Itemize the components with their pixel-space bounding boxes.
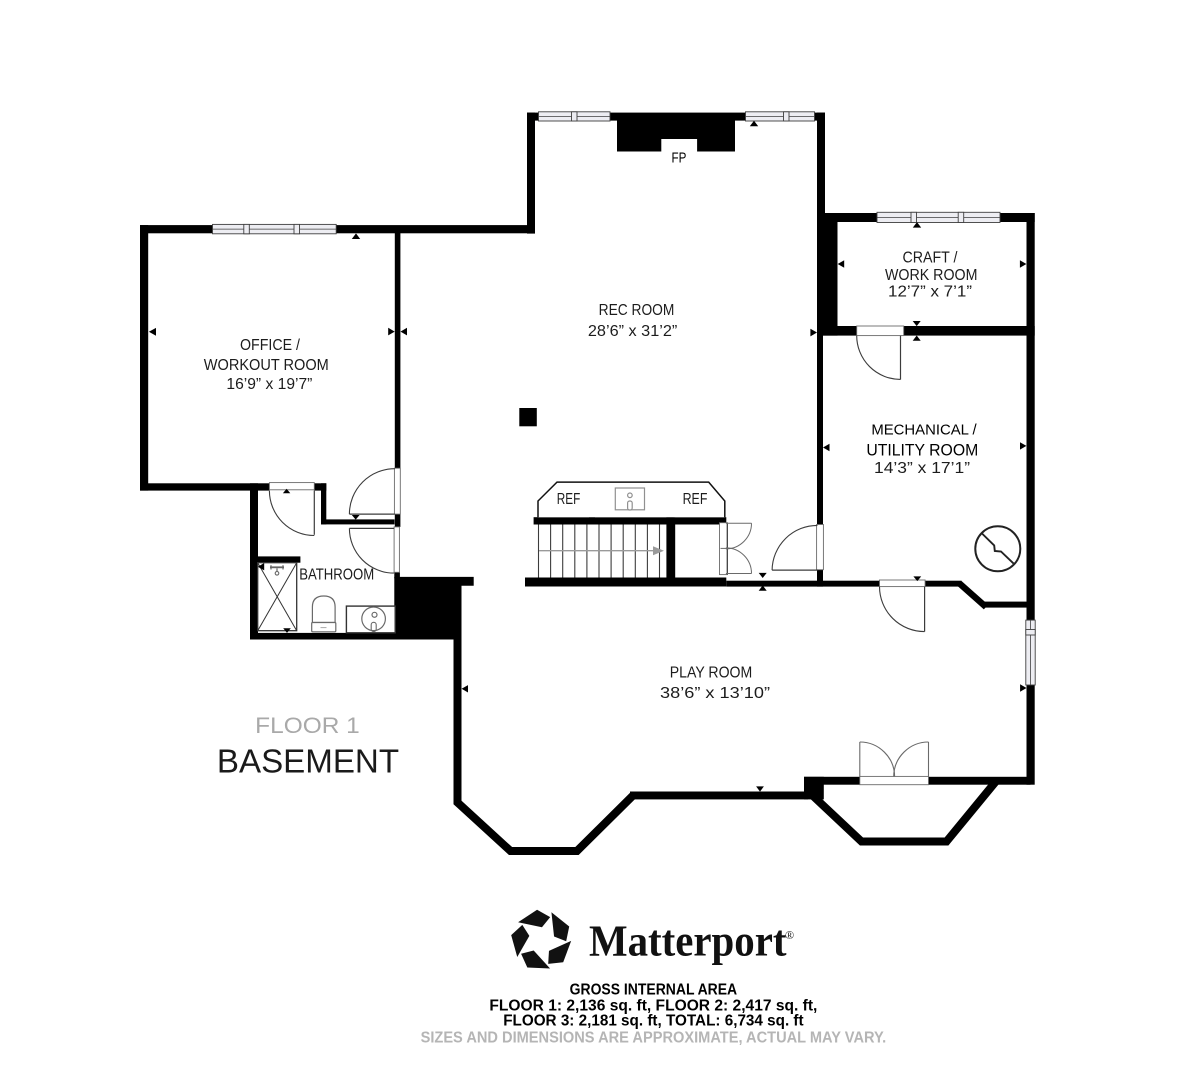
svg-text:MECHANICAL /: MECHANICAL /	[871, 423, 977, 439]
svg-text:GROSS INTERNAL AREA: GROSS INTERNAL AREA	[570, 982, 738, 999]
svg-text:BASEMENT: BASEMENT	[217, 744, 399, 781]
svg-text:SIZES AND DIMENSIONS ARE APPRO: SIZES AND DIMENSIONS ARE APPROXIMATE, AC…	[421, 1030, 887, 1047]
svg-text:FLOOR 3: 2,181 sq. ft, TOTAL:: FLOOR 3: 2,181 sq. ft, TOTAL: 6,734 sq. …	[503, 1013, 804, 1030]
svg-text:®: ®	[785, 928, 794, 942]
svg-text:PLAY ROOM: PLAY ROOM	[670, 664, 753, 681]
svg-text:REC ROOM: REC ROOM	[599, 302, 675, 319]
svg-text:BATHROOM: BATHROOM	[299, 567, 374, 584]
svg-text:38’6” x 13’10”: 38’6” x 13’10”	[660, 685, 770, 702]
svg-text:16’9” x 19’7”: 16’9” x 19’7”	[226, 376, 312, 393]
svg-text:Matterport: Matterport	[589, 917, 787, 966]
svg-text:12’7” x 7’1”: 12’7” x 7’1”	[888, 284, 972, 301]
svg-text:UTILITY ROOM: UTILITY ROOM	[866, 442, 978, 460]
svg-text:REF: REF	[557, 491, 581, 508]
svg-text:CRAFT /: CRAFT /	[903, 250, 959, 267]
svg-text:WORKOUT ROOM: WORKOUT ROOM	[204, 357, 329, 374]
svg-text:FLOOR 1: FLOOR 1	[255, 713, 360, 738]
svg-text:OFFICE /: OFFICE /	[240, 337, 301, 354]
svg-text:WORK ROOM: WORK ROOM	[885, 267, 978, 284]
svg-text:14’3” x 17’1”: 14’3” x 17’1”	[874, 460, 970, 477]
svg-text:FP: FP	[672, 151, 687, 167]
svg-text:REF: REF	[683, 491, 708, 508]
svg-text:28’6” x 31’2”: 28’6” x 31’2”	[588, 323, 677, 340]
